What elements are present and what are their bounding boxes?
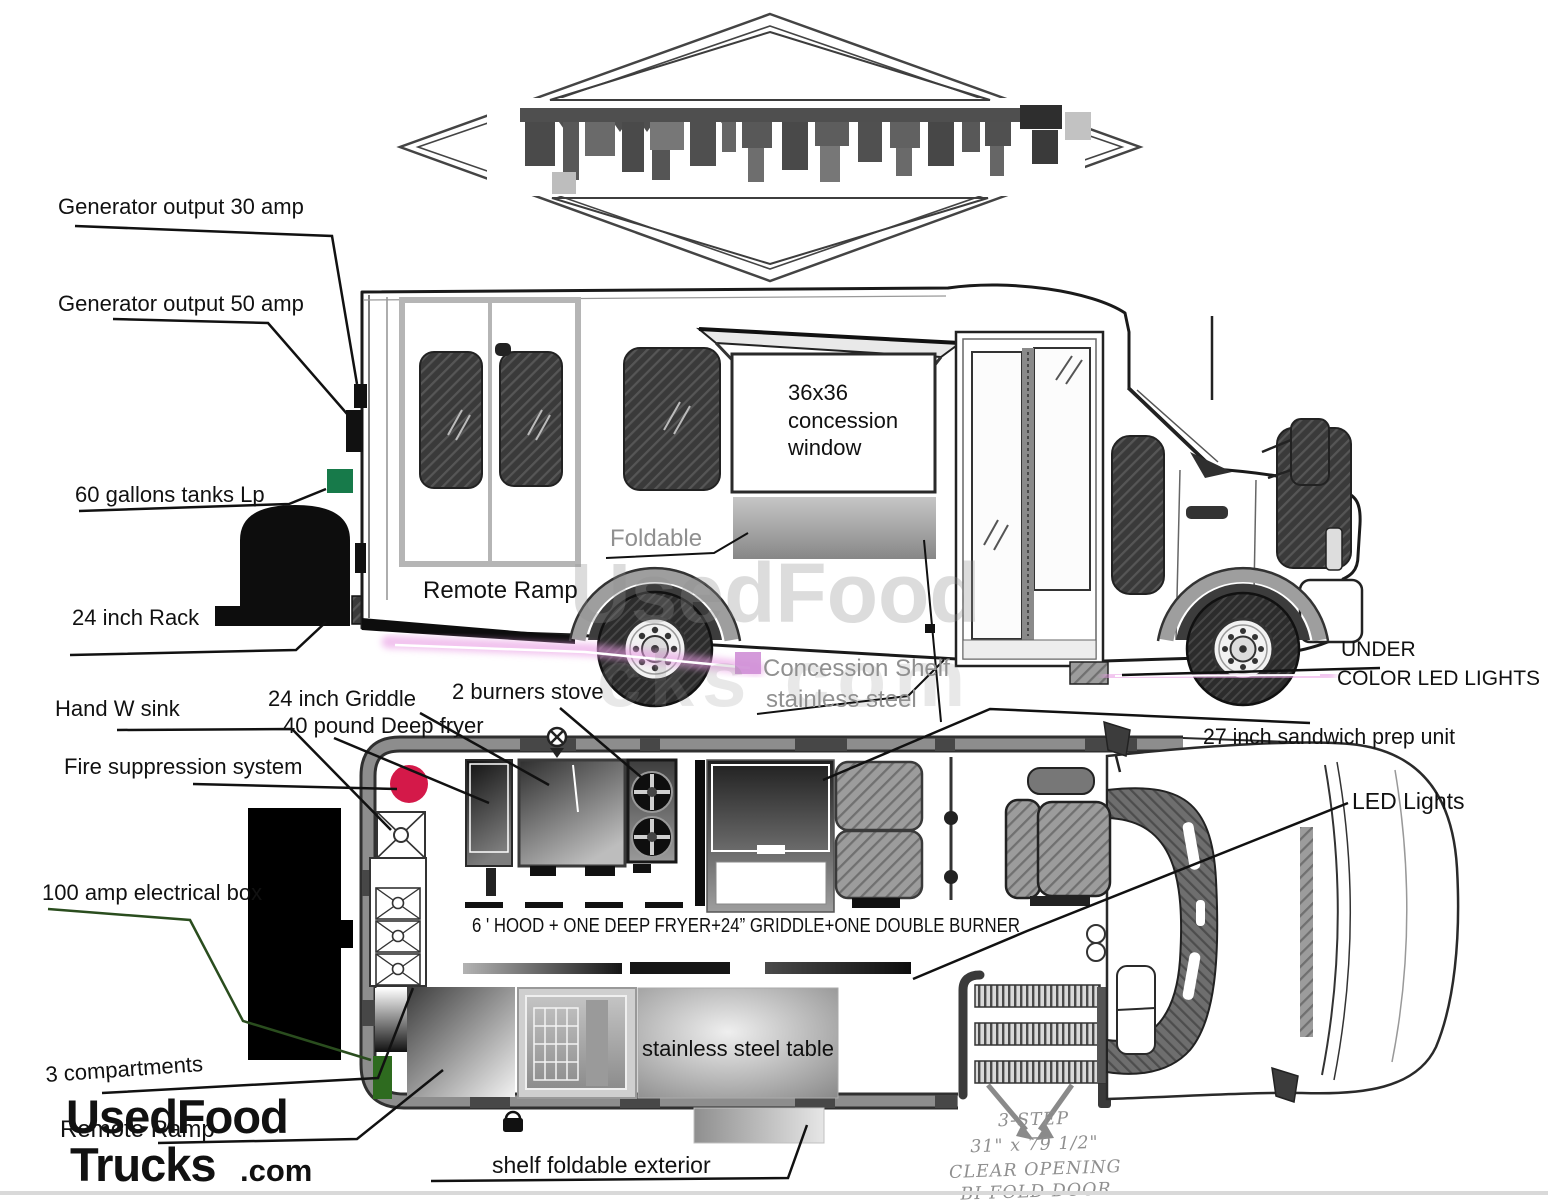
side-window — [624, 348, 720, 490]
label-burners-stove: 2 burners stove — [452, 679, 604, 704]
concession-window: 36x36 concession window — [699, 329, 960, 559]
label-rack: 24 inch Rack — [72, 605, 200, 630]
label-fire-suppression: Fire suppression system — [64, 754, 302, 779]
logo-line1: UsedFood — [66, 1090, 288, 1143]
label-deep-fryer: 40 pound Deep fryer — [283, 713, 484, 738]
cook-line — [466, 760, 705, 906]
label-electrical-box: 100 amp electrical box — [42, 880, 262, 905]
rear-generator-silhouette — [240, 505, 350, 608]
remote-ramp-area — [407, 987, 515, 1097]
concession-window-text: window — [787, 435, 861, 460]
driver-seat — [1006, 800, 1110, 906]
diamond-emblem — [400, 14, 1140, 281]
cab-door-window-plan — [1117, 966, 1155, 1054]
label-foldable: Foldable — [610, 525, 702, 552]
svg-text:31" x 79 1/2": 31" x 79 1/2" — [970, 1133, 1099, 1157]
chest-freezer — [518, 988, 636, 1098]
logo-suffix: .com — [240, 1153, 312, 1188]
steps-note: 3-STEP 31" x 79 1/2" CLEAR OPENING BI-FO… — [947, 1107, 1123, 1200]
hand-wash-sink — [377, 812, 425, 858]
led-counter-bars — [463, 962, 911, 974]
stainless-table: stainless steel table — [638, 988, 838, 1098]
label-compartments: 3 compartments — [45, 1051, 204, 1087]
door-handle — [1186, 506, 1228, 519]
headlight — [1326, 528, 1342, 570]
label-sandwich-prep: 27 inch sandwich prep unit — [1203, 724, 1455, 749]
generator-outlet-50 — [346, 410, 363, 452]
food-truck-diagram: 36x36 concession window — [0, 0, 1548, 1200]
electrical-box-shape — [248, 808, 341, 1060]
rear-ramp-doors — [402, 300, 578, 564]
three-compartment-sink — [370, 858, 426, 986]
bench-seats — [836, 762, 922, 908]
concession-window-text: concession — [788, 408, 898, 433]
label-led-lights: LED Lights — [1352, 788, 1465, 814]
svg-text:3-STEP: 3-STEP — [998, 1109, 1070, 1131]
label-shelf-exterior: shelf foldable exterior — [492, 1152, 711, 1178]
bottom-divider — [0, 1191, 1548, 1195]
generator-outlet-30 — [354, 384, 367, 408]
svg-text:UsedFood: UsedFood — [570, 546, 981, 640]
cab-quarter-window — [1112, 436, 1164, 594]
label-lp-tanks: 60 gallons tanks Lp — [75, 482, 265, 507]
label-concession-shelf: Concession Shelf — [763, 655, 950, 682]
label-concession-shelf: stainless steel — [766, 686, 917, 713]
padlock-icon — [503, 1112, 523, 1132]
door-step — [1070, 662, 1108, 684]
label-generator-50: Generator output 50 amp — [58, 291, 304, 316]
label-remote-ramp-side: Remote Ramp — [423, 577, 578, 604]
pole-table — [944, 757, 958, 900]
label-hand-sink: Hand W sink — [55, 696, 181, 721]
label-under-led: COLOR LED LIGHTS — [1337, 667, 1540, 690]
windshield-pillar — [1300, 827, 1313, 1037]
label-hood-note: 6 ' HOOD + ONE DEEP FRYER+24” GRIDDLE+ON… — [472, 915, 1020, 937]
concession-window-text: 36x36 — [788, 380, 848, 405]
exterior-shelf — [694, 1108, 824, 1143]
usedfoodtrucks-logo: UsedFood Trucks .com — [66, 1090, 312, 1191]
sandwich-prep-unit — [707, 760, 834, 912]
label-griddle: 24 inch Griddle — [268, 686, 416, 711]
label-steel-table: stainless steel table — [642, 1036, 834, 1061]
logo-line2: Trucks — [70, 1138, 216, 1191]
steering-wheel — [1028, 768, 1094, 794]
label-generator-30: Generator output 30 amp — [58, 194, 304, 219]
rear-door-window — [420, 352, 482, 488]
rear-door-window — [500, 352, 562, 486]
label-under-led: UNDER — [1341, 638, 1416, 661]
deep-fryer-shape — [466, 760, 512, 866]
vent-symbol — [548, 728, 566, 758]
lp-tank-marker — [327, 469, 353, 493]
side-mirror — [1291, 419, 1329, 485]
svg-text:BI-FOLD DOOR: BI-FOLD DOOR — [959, 1179, 1112, 1200]
